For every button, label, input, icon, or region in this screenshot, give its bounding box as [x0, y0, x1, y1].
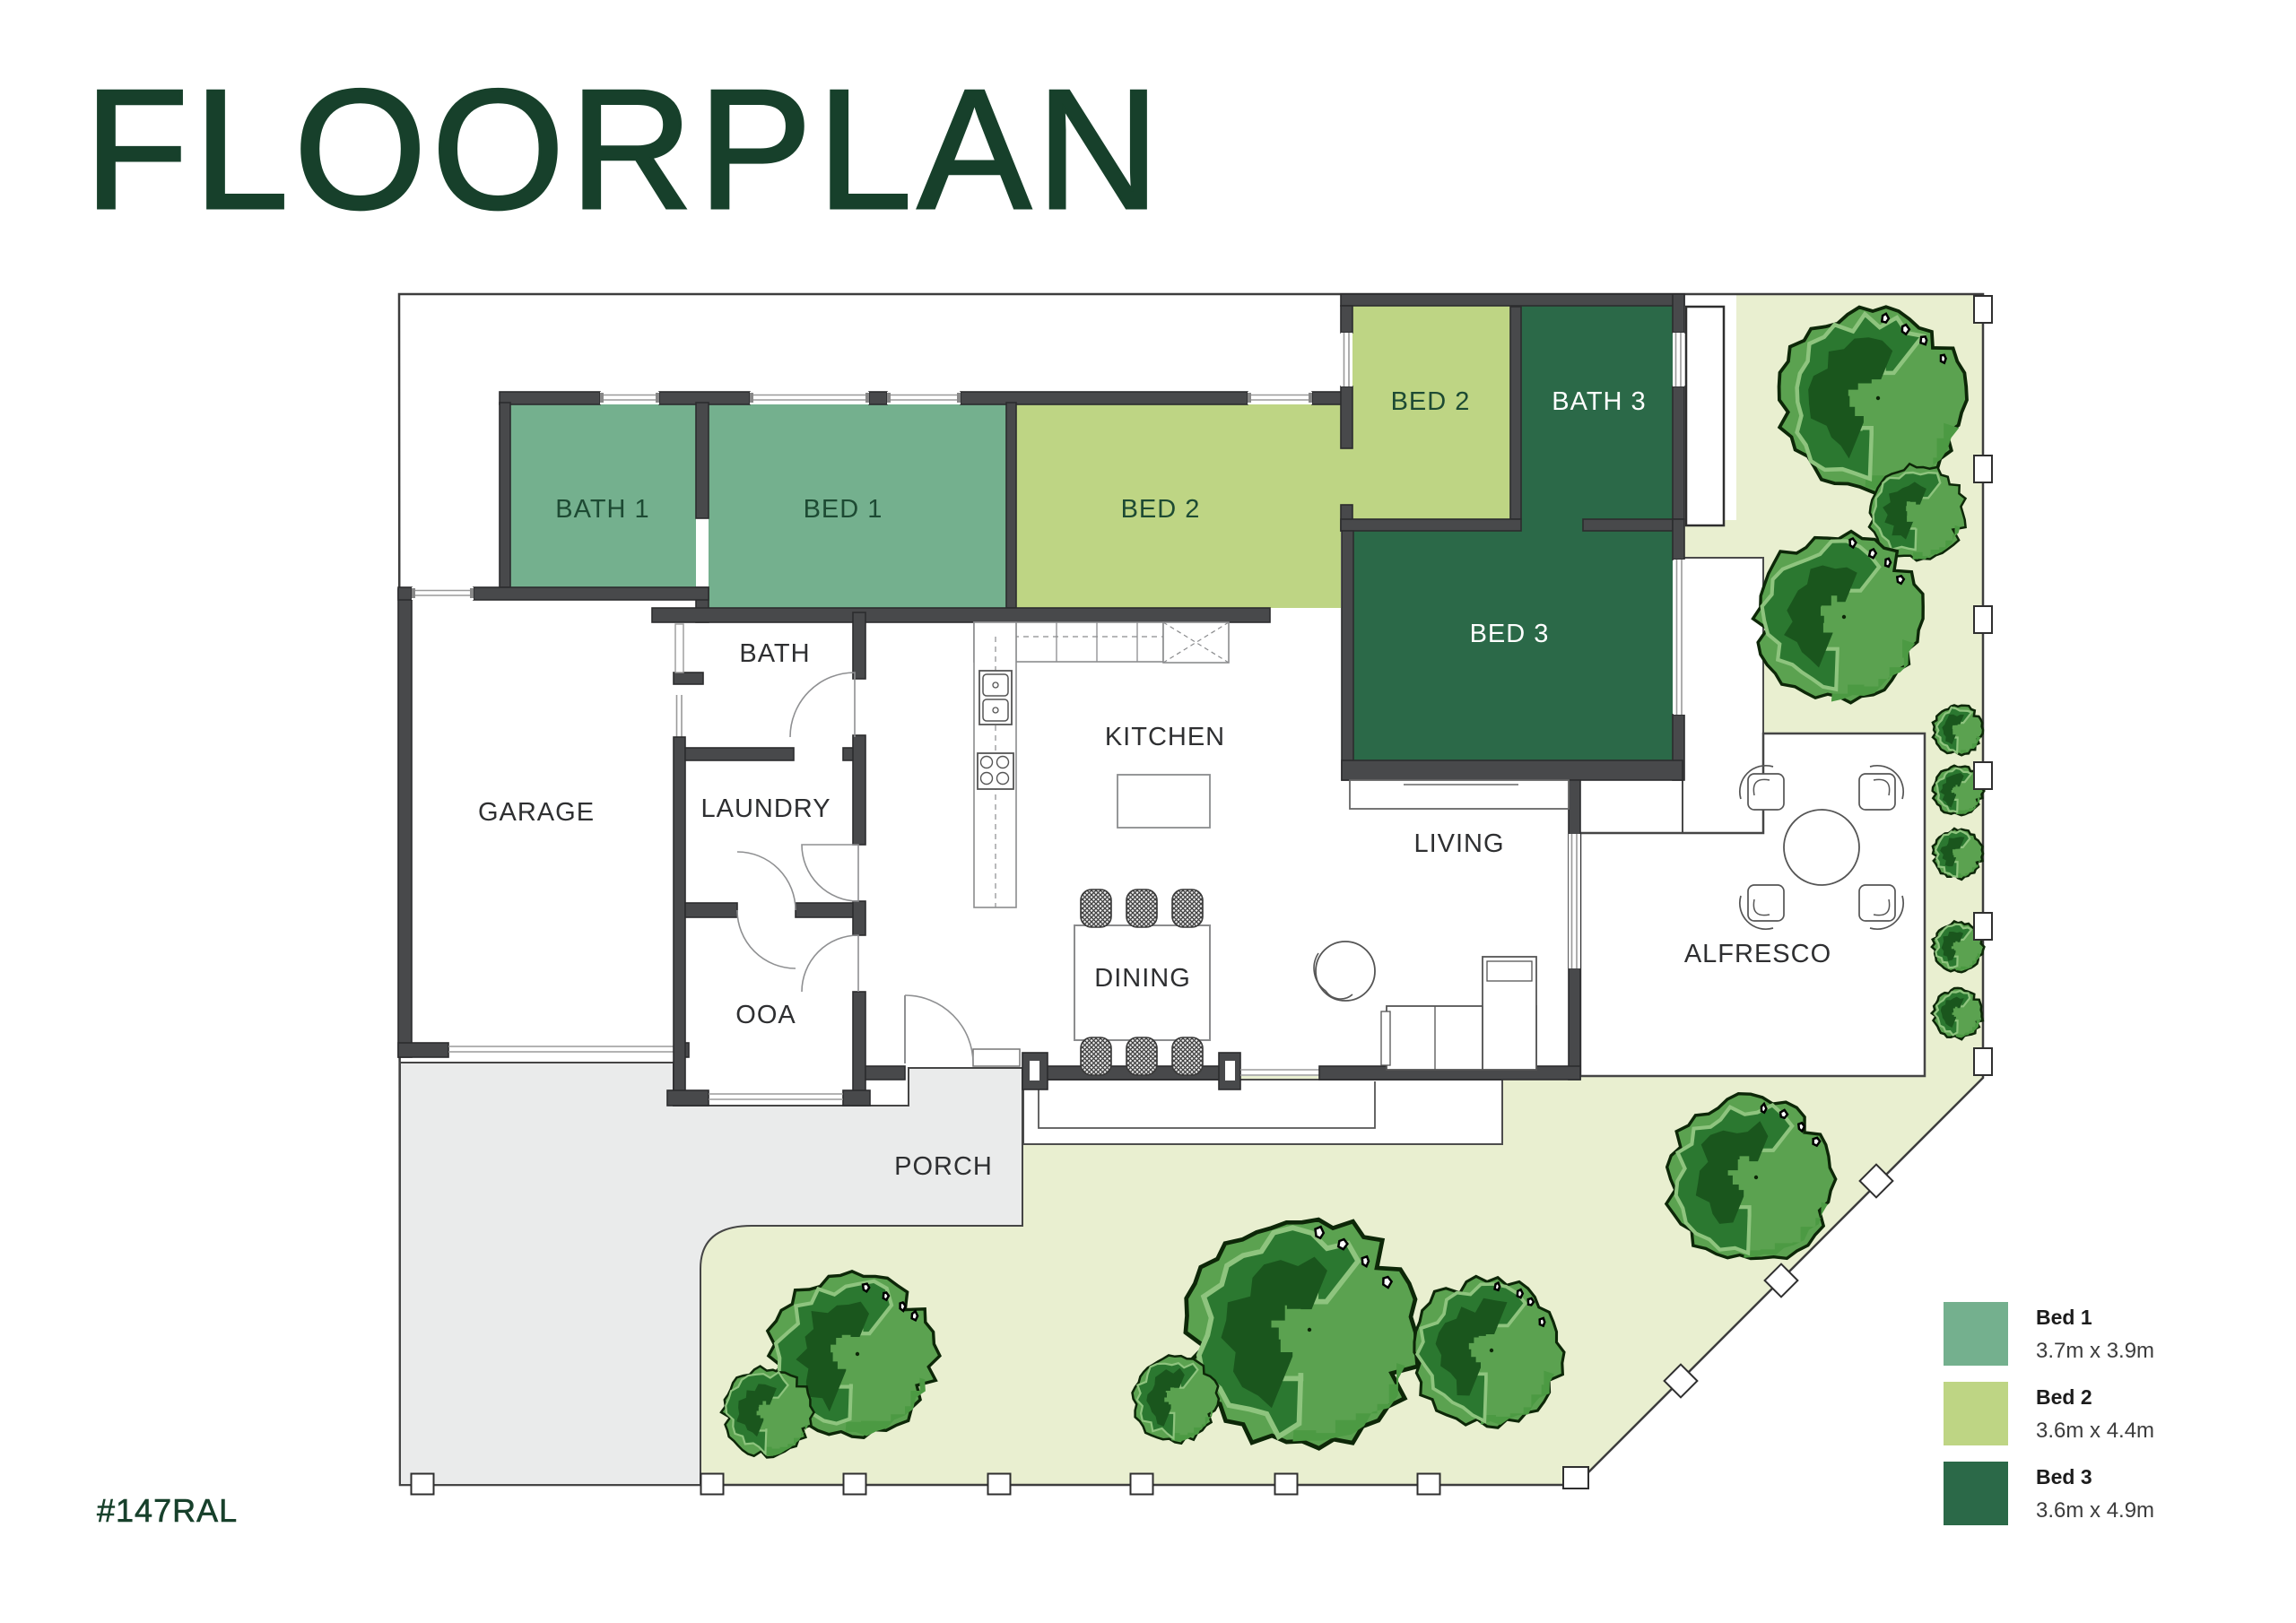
svg-text:LIVING: LIVING — [1413, 829, 1504, 858]
svg-text:BED 1: BED 1 — [804, 495, 883, 524]
svg-text:Bed 2: Bed 2 — [2036, 1385, 2092, 1409]
svg-text:BATH 3: BATH 3 — [1552, 387, 1646, 416]
svg-text:3.7m x 3.9m: 3.7m x 3.9m — [2036, 1339, 2154, 1363]
svg-text:BATH 1: BATH 1 — [555, 495, 649, 524]
svg-text:OOA: OOA — [735, 1001, 796, 1029]
svg-text:BATH: BATH — [739, 639, 810, 668]
svg-text:3.6m x 4.9m: 3.6m x 4.9m — [2036, 1498, 2154, 1523]
svg-text:BED 2: BED 2 — [1121, 495, 1201, 524]
svg-text:BED 3: BED 3 — [1470, 620, 1550, 648]
svg-text:GARAGE: GARAGE — [478, 798, 595, 827]
svg-text:3.6m x 4.4m: 3.6m x 4.4m — [2036, 1419, 2154, 1443]
svg-text:#147RAL: #147RAL — [97, 1492, 238, 1529]
svg-text:BED 2: BED 2 — [1391, 387, 1471, 416]
svg-text:LAUNDRY: LAUNDRY — [700, 794, 831, 823]
svg-text:PORCH: PORCH — [894, 1152, 993, 1181]
svg-text:ALFRESCO: ALFRESCO — [1684, 940, 1831, 968]
svg-text:Bed 1: Bed 1 — [2036, 1306, 2092, 1329]
svg-text:KITCHEN: KITCHEN — [1105, 723, 1225, 751]
svg-text:FLOORPLAN: FLOORPLAN — [84, 55, 1165, 245]
svg-text:DINING: DINING — [1094, 964, 1191, 993]
svg-text:Bed 3: Bed 3 — [2036, 1465, 2092, 1488]
